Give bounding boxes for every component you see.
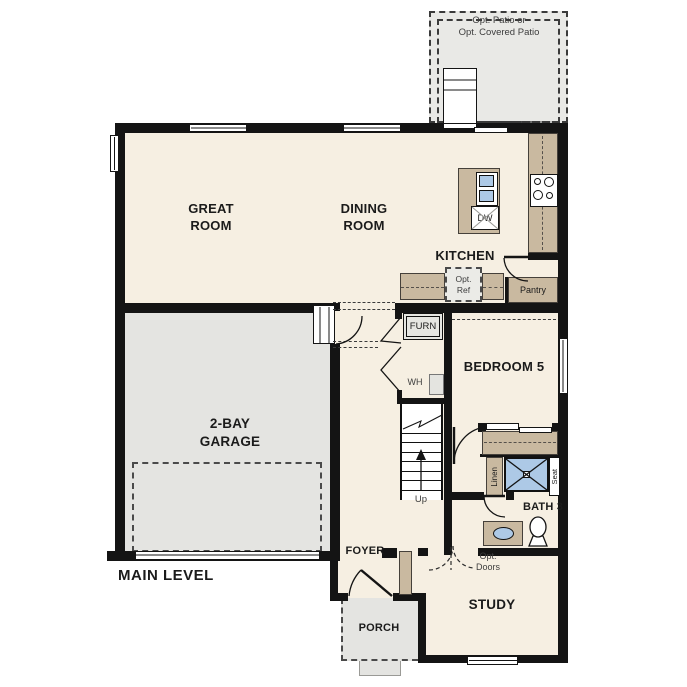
- stair-tread: [402, 452, 441, 453]
- stair-tread: [402, 461, 441, 462]
- linen-label: Linen: [490, 467, 499, 487]
- stove: [530, 174, 558, 207]
- sink-basin: [479, 175, 494, 187]
- stair-tread: [402, 490, 441, 491]
- patio-slider-panel-2: [474, 127, 508, 133]
- pantry: Pantry: [508, 277, 558, 303]
- garage-entry-door-frame: [313, 305, 335, 344]
- patio-slider-panel-1: [443, 123, 477, 129]
- shower-drain: [523, 471, 530, 478]
- wall-bath-entry-east: [506, 492, 514, 500]
- bedroom5-closet: [482, 431, 558, 455]
- room-label-kitchen: KITCHEN: [415, 248, 515, 265]
- dishwasher-label: DW: [478, 213, 493, 223]
- water-heater-label: WH: [404, 377, 426, 388]
- closet-bypass-door-1: [486, 423, 519, 430]
- wall-kitchen-south: [395, 303, 568, 313]
- wall-furn-left: [395, 303, 402, 319]
- water-heater-box: [429, 374, 444, 395]
- floor-plan: Opt. Patio or Opt. Covered Patio: [0, 0, 687, 687]
- burner-icon: [533, 190, 543, 200]
- archway-dash: [333, 302, 395, 303]
- pantry-label: Pantry: [520, 285, 546, 295]
- burner-icon: [544, 177, 554, 187]
- kitchen-sink: [476, 172, 498, 206]
- wall-garage-top: [115, 303, 340, 313]
- patio-label: Opt. Patio or Opt. Covered Patio: [437, 15, 561, 39]
- wall-left-garage: [115, 303, 125, 561]
- window-great-room-left: [110, 135, 119, 172]
- garage-door-panel: [135, 551, 320, 560]
- burner-icon: [546, 192, 553, 199]
- room-label-garage: 2-BAY GARAGE: [180, 415, 280, 450]
- burner-icon: [534, 178, 541, 185]
- room-label-bedroom5: BEDROOM 5: [444, 359, 564, 376]
- room-label-porch: PORCH: [339, 621, 419, 635]
- optional-doors-label: Opt. Doors: [465, 551, 511, 574]
- wall-pantry-north: [528, 253, 568, 260]
- wall-bath-entry-west: [452, 492, 484, 500]
- foyer-closet: [399, 551, 412, 595]
- stair-tread: [402, 480, 441, 481]
- furnace-box: FURN: [406, 316, 440, 337]
- window-great-room: [189, 124, 247, 132]
- linen-cabinet: Linen: [486, 457, 503, 496]
- stair-tread: [402, 471, 441, 472]
- stair-tread: [402, 442, 441, 443]
- room-label-bath3: BATH 3: [503, 500, 583, 514]
- stairs-up-label: Up: [405, 494, 437, 506]
- room-label-study: STUDY: [442, 596, 542, 614]
- window-dining-room: [343, 124, 401, 132]
- counter-dash-right: [483, 287, 503, 288]
- level-title: MAIN LEVEL: [118, 566, 258, 586]
- hall-opening-dash: [333, 347, 378, 348]
- fireplace: [443, 68, 477, 125]
- seat-label: Seat: [550, 469, 559, 484]
- bedroom-closet-rod-dash: [452, 319, 556, 320]
- room-label-great-room: GREAT ROOM: [161, 201, 261, 235]
- room-label-foyer: FOYER: [333, 544, 397, 558]
- wall-interior-vertical: [444, 313, 452, 555]
- bath-sink: [493, 527, 514, 540]
- closet-shelf-dash: [484, 442, 556, 443]
- archway-dash: [333, 309, 395, 310]
- wall-porch-study: [418, 593, 426, 663]
- bath-vanity: [483, 521, 523, 546]
- shower: [504, 457, 549, 492]
- wall-front-west: [330, 593, 348, 601]
- opt-ref-label: Opt. Ref: [455, 274, 471, 295]
- furnace-closet: FURN: [403, 313, 443, 340]
- hall-opening-dash: [333, 341, 378, 342]
- sink-basin: [479, 190, 494, 202]
- wall-study-north-west: [418, 548, 428, 556]
- optional-refrigerator: Opt. Ref: [445, 267, 482, 302]
- furnace-label: FURN: [410, 321, 436, 332]
- garage-door-zone: [132, 462, 322, 552]
- window-study: [467, 656, 518, 665]
- counter-dash-left: [401, 287, 444, 288]
- room-label-dining-room: DINING ROOM: [314, 201, 414, 235]
- closet-bypass-door-2: [519, 427, 552, 433]
- stairs: [400, 404, 443, 500]
- dishwasher-box: DW: [471, 206, 499, 230]
- shower-seat: Seat: [549, 457, 560, 496]
- stair-tread: [402, 433, 441, 434]
